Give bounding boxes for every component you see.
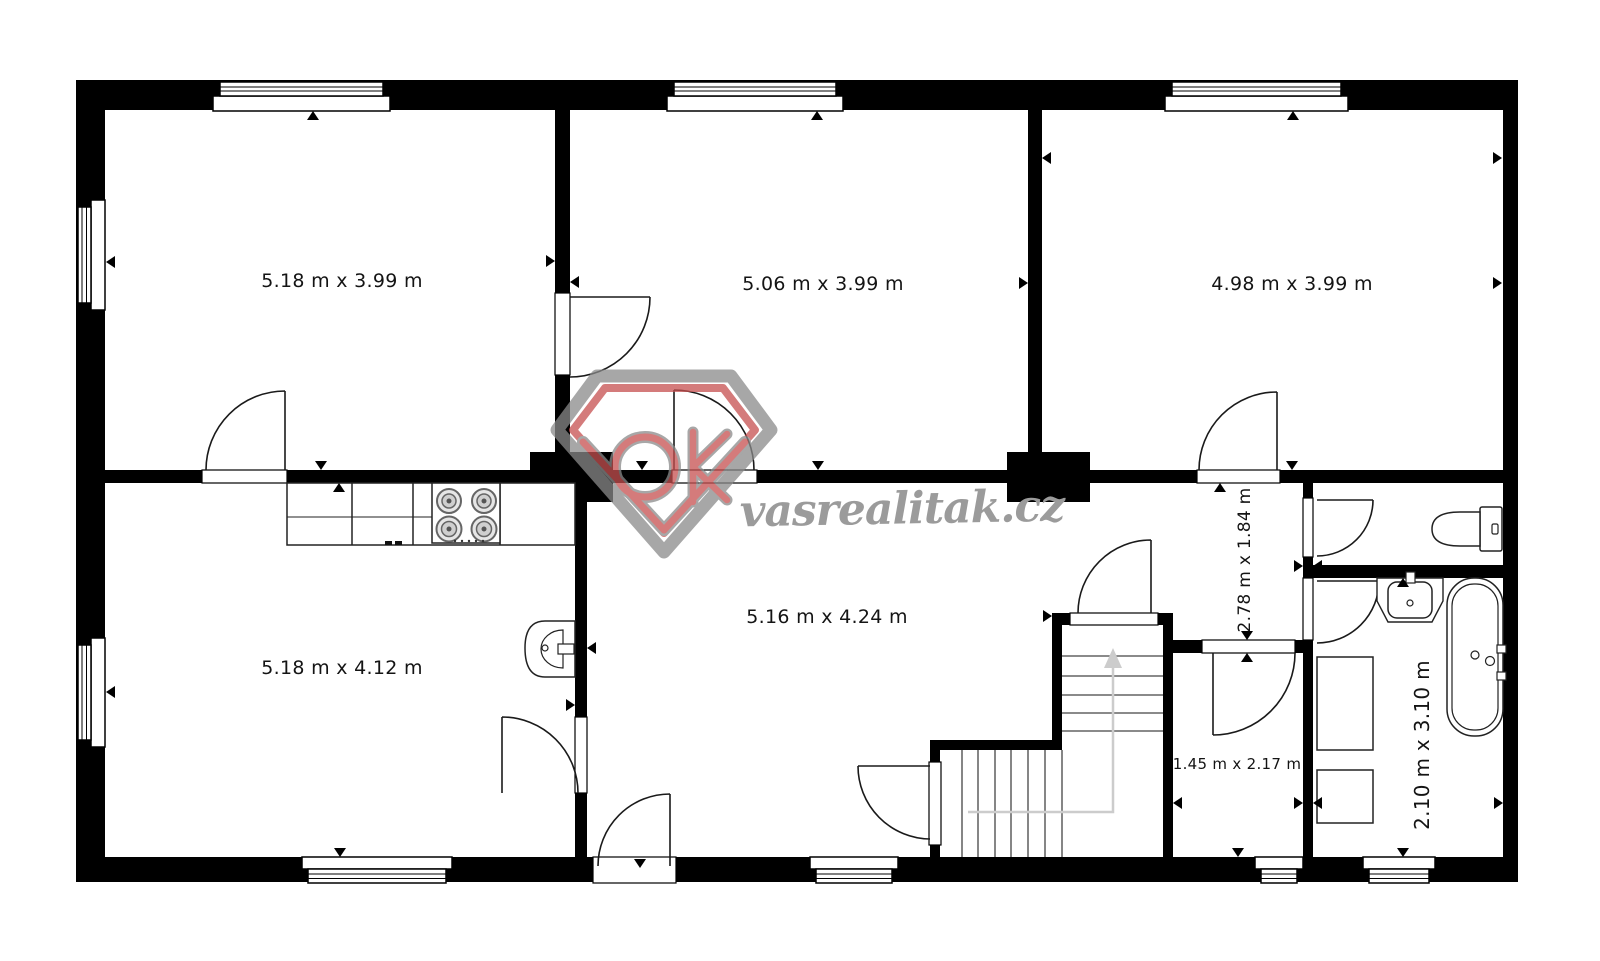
door-arc bbox=[1199, 392, 1277, 470]
staircase bbox=[962, 648, 1163, 857]
door-arc bbox=[1078, 540, 1151, 613]
door-arc bbox=[206, 391, 285, 470]
door-arc bbox=[570, 297, 650, 377]
door-openings bbox=[202, 293, 1313, 883]
toilet-symbol bbox=[1432, 507, 1502, 551]
room-label-top-left: 5.18 m x 3.99 m bbox=[261, 270, 423, 292]
room-label-hallway: 2.78 m x 1.84 m bbox=[1235, 488, 1255, 633]
door-arc bbox=[1317, 581, 1379, 643]
room-label-bottom-left: 5.18 m x 4.12 m bbox=[261, 657, 423, 679]
kitchen-basin-symbol bbox=[525, 621, 575, 677]
watermark-brand-text: vasrealitak.cz bbox=[739, 481, 1064, 538]
floor-plan-canvas: 5.18 m x 3.99 m 5.06 m x 3.99 m 4.98 m x… bbox=[0, 0, 1600, 961]
stair-direction-line bbox=[968, 666, 1113, 812]
window-symbol bbox=[810, 857, 898, 883]
room-label-bottom-middle: 5.16 m x 4.24 m bbox=[746, 606, 908, 628]
stair-up-arrow-icon bbox=[1104, 648, 1122, 668]
window-symbol bbox=[1363, 857, 1435, 883]
window-symbol bbox=[1255, 857, 1303, 883]
floor-plan-drawing bbox=[0, 0, 1600, 961]
washing-machine-symbol bbox=[1317, 657, 1373, 750]
kitchen-counter bbox=[287, 483, 575, 545]
window-symbol bbox=[1165, 82, 1348, 111]
door-arc bbox=[1213, 653, 1295, 735]
door-arcs bbox=[206, 297, 1379, 866]
window-symbol bbox=[302, 857, 452, 883]
window-symbol bbox=[667, 82, 843, 111]
window-symbol bbox=[213, 82, 390, 111]
room-label-bathroom: 2.10 m x 3.10 m bbox=[1410, 660, 1434, 830]
ok-diamond-logo bbox=[557, 376, 771, 552]
window-symbol bbox=[78, 200, 105, 310]
door-arc bbox=[598, 794, 670, 866]
bathroom-sink-symbol bbox=[1377, 572, 1443, 622]
room-label-top-right: 4.98 m x 3.99 m bbox=[1211, 273, 1373, 295]
bathtub-symbol bbox=[1447, 578, 1506, 736]
door-arc bbox=[858, 766, 930, 839]
cabinet-symbol bbox=[1317, 770, 1373, 823]
window-symbol bbox=[78, 638, 105, 747]
door-arc bbox=[1317, 500, 1373, 556]
room-label-small-room: 1.45 m x 2.17 m bbox=[1173, 755, 1301, 773]
room-label-top-middle: 5.06 m x 3.99 m bbox=[742, 273, 904, 295]
stove-symbol bbox=[432, 483, 500, 543]
walls bbox=[76, 80, 1518, 882]
door-arc bbox=[502, 717, 578, 793]
